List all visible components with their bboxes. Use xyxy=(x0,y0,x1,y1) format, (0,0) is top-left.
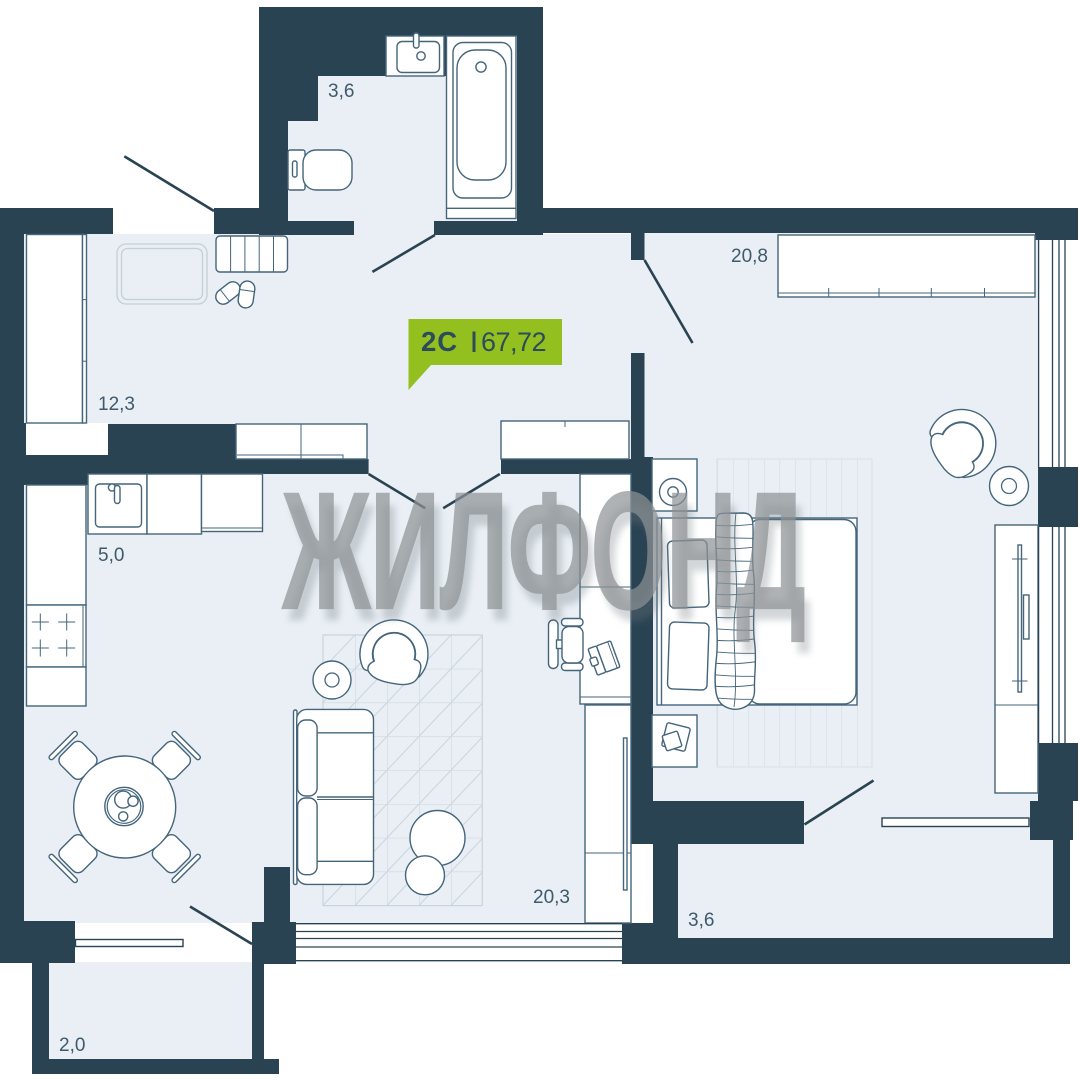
svg-text:3,6: 3,6 xyxy=(328,81,354,102)
svg-text:12,3: 12,3 xyxy=(98,394,135,415)
svg-text:20,3: 20,3 xyxy=(533,887,570,908)
svg-text:5,0: 5,0 xyxy=(98,545,124,566)
svg-text:2С: 2С xyxy=(421,326,458,357)
svg-text:ЖИЛФОНД: ЖИЛФОНД xyxy=(282,459,806,644)
svg-text:3,6: 3,6 xyxy=(688,910,714,931)
svg-text:2,0: 2,0 xyxy=(59,1035,85,1056)
svg-text:67,72: 67,72 xyxy=(481,327,546,357)
svg-text:20,8: 20,8 xyxy=(731,246,768,267)
